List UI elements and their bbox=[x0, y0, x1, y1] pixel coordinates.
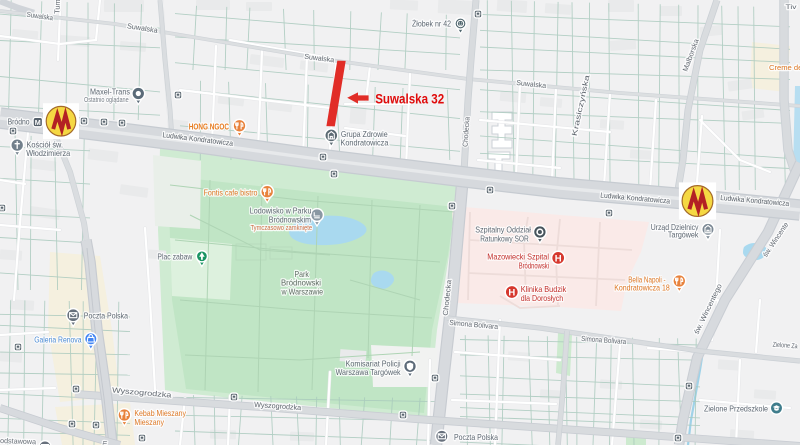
svg-text:Bródnowski: Bródnowski bbox=[519, 261, 549, 271]
svg-text:Kondratowicza: Kondratowicza bbox=[341, 137, 389, 147]
svg-text:Targówek: Targówek bbox=[668, 230, 699, 240]
svg-text:Bródno: Bródno bbox=[8, 118, 31, 127]
svg-text:Bródnowskim: Bródnowskim bbox=[269, 214, 311, 224]
svg-text:Tiv: Tiv bbox=[786, 4, 798, 11]
svg-text:Warszawa Targówek: Warszawa Targówek bbox=[336, 367, 402, 377]
svg-text:Ratunkowy SOR: Ratunkowy SOR bbox=[480, 233, 529, 243]
svg-text:Suwalska 32: Suwalska 32 bbox=[375, 91, 444, 107]
svg-text:Poczta Polska: Poczta Polska bbox=[84, 311, 128, 321]
svg-text:H: H bbox=[508, 287, 515, 298]
svg-text:Kondratowicza 18: Kondratowicza 18 bbox=[614, 283, 670, 293]
svg-text:Mieszany: Mieszany bbox=[134, 417, 164, 427]
svg-text:H: H bbox=[555, 253, 562, 264]
svg-text:Plac zabaw: Plac zabaw bbox=[157, 252, 193, 262]
svg-text:Tumska: Tumska bbox=[52, 0, 62, 14]
svg-text:Poczta Polska: Poczta Polska bbox=[454, 432, 498, 442]
svg-text:Fontis cafe bistro: Fontis cafe bistro bbox=[204, 188, 258, 198]
svg-text:Tymczasowo zamknięte: Tymczasowo zamknięte bbox=[250, 225, 312, 232]
svg-text:M: M bbox=[35, 118, 41, 127]
svg-text:Zielone Przedszkole: Zielone Przedszkole bbox=[704, 404, 768, 414]
svg-text:HONG NGOC: HONG NGOC bbox=[189, 121, 229, 131]
svg-text:w Warszawie: w Warszawie bbox=[281, 287, 324, 297]
svg-text:Maxel-Trans: Maxel-Trans bbox=[90, 87, 130, 97]
svg-text:Żłobek nr 42: Żłobek nr 42 bbox=[412, 19, 451, 29]
svg-text:Ostatnio oglądane: Ostatnio oglądane bbox=[84, 97, 129, 104]
svg-text:odstawowa: odstawowa bbox=[0, 436, 37, 445]
svg-text:Creme de la: Creme de la bbox=[769, 63, 800, 72]
svg-text:dla Dorosłych: dla Dorosłych bbox=[521, 293, 564, 303]
svg-text:Galeria Renova: Galeria Renova bbox=[34, 335, 82, 345]
svg-text:Włodzimierza: Włodzimierza bbox=[26, 148, 70, 158]
